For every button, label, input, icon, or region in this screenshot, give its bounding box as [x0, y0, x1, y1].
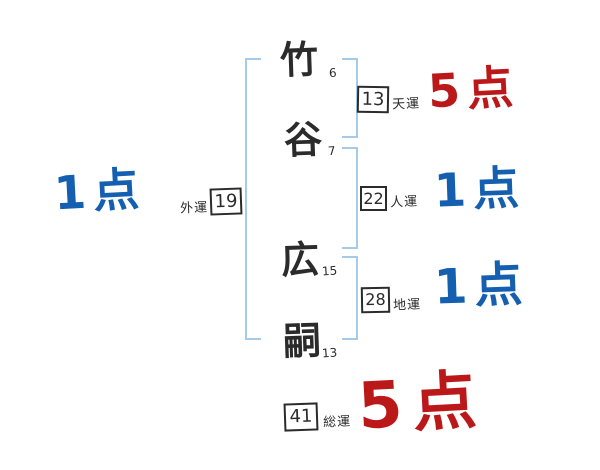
earth-luck-bracket — [342, 256, 358, 340]
outer-luck-value-box: 19 — [210, 187, 243, 215]
outer-luck-label: 外運 — [180, 197, 209, 217]
person-luck-score: 1点 — [433, 164, 527, 213]
total-luck-score: 5点 — [356, 369, 488, 440]
heaven-luck-label: 天運 — [392, 93, 421, 113]
stroke-count-4: 13 — [322, 345, 338, 360]
name-char-2: 谷 — [283, 120, 322, 159]
person-luck-bracket — [342, 147, 358, 249]
name-fortune-diagram: 竹 6 谷 7 広 15 嗣 13 13 天運 5点 22 人運 1点 28 地… — [0, 0, 600, 470]
stroke-count-2: 7 — [328, 144, 337, 158]
outer-luck-bracket — [245, 58, 261, 340]
stroke-count-3: 15 — [322, 263, 338, 278]
name-char-3: 広 — [280, 240, 319, 279]
name-char-4: 嗣 — [282, 321, 321, 360]
earth-luck-value-box: 28 — [361, 287, 390, 314]
heaven-luck-value-box: 13 — [357, 86, 389, 114]
total-luck-label: 総運 — [323, 411, 352, 431]
person-luck-value-box: 22 — [360, 186, 387, 211]
earth-luck-score: 1点 — [433, 260, 530, 311]
outer-luck-score: 1点 — [53, 166, 147, 217]
total-luck-value-box: 41 — [284, 402, 319, 431]
heaven-luck-bracket — [342, 58, 358, 138]
heaven-luck-score: 5点 — [427, 64, 521, 115]
stroke-count-1: 6 — [329, 66, 338, 80]
name-char-1: 竹 — [279, 40, 318, 79]
person-luck-label: 人運 — [390, 191, 419, 211]
earth-luck-label: 地運 — [393, 294, 422, 314]
